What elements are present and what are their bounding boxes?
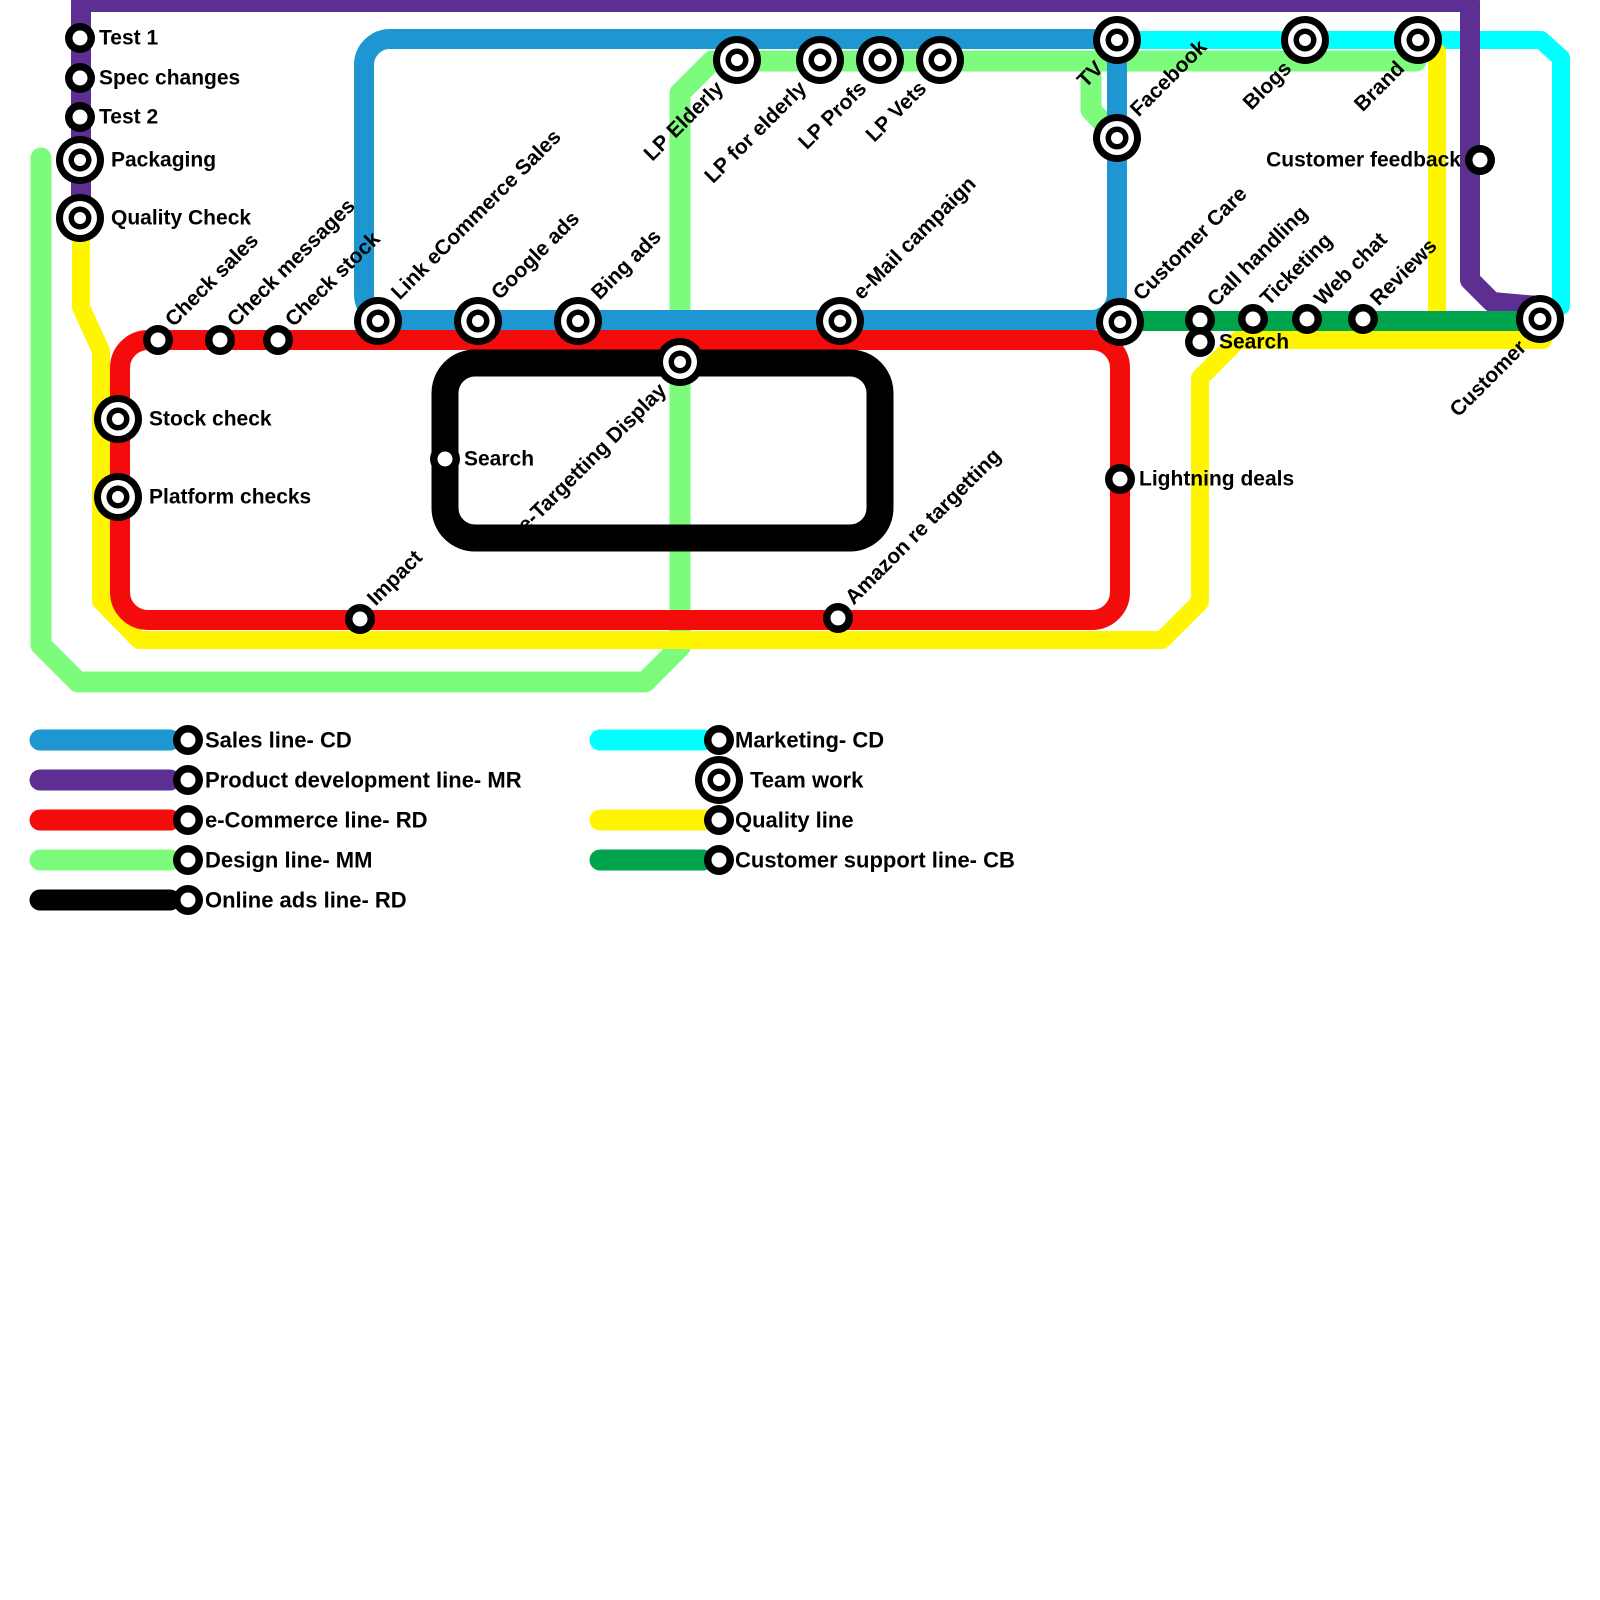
legend-label-quality: Quality line <box>735 808 854 833</box>
label-quality-check: Quality Check <box>111 207 251 230</box>
stop-center <box>181 733 196 748</box>
stop-center <box>438 452 453 467</box>
legend-item-product-development: Product development line- MR <box>40 765 522 795</box>
interchange-center <box>1534 313 1546 325</box>
interchange-center <box>112 413 124 425</box>
station-customer-feedback: Customer feedback <box>1266 145 1495 175</box>
interchange-center <box>1111 34 1123 46</box>
stop-center <box>181 853 196 868</box>
legend-label-marketing: Marketing- CD <box>735 728 884 753</box>
legend-item-ecommerce: e-Commerce line- RD <box>40 805 428 835</box>
stop-center <box>1246 312 1261 327</box>
legend-label-ecommerce: e-Commerce line- RD <box>205 808 428 833</box>
stop-center <box>1113 472 1128 487</box>
station-test-2: Test 2 <box>65 102 158 132</box>
stop-center <box>181 813 196 828</box>
legend-label-team-work: Team work <box>750 768 864 793</box>
label-lightning-deals: Lightning deals <box>1139 468 1294 491</box>
interchange-center <box>934 54 946 66</box>
stop-center <box>181 773 196 788</box>
stop-center <box>271 333 286 348</box>
legend-item-design: Design line- MM <box>40 845 372 875</box>
interchange-center <box>731 54 743 66</box>
interchange-center <box>874 54 886 66</box>
interchange-center <box>713 774 725 786</box>
station-search-ads: Search <box>430 444 534 474</box>
interchange-center <box>814 54 826 66</box>
process-metro-map-canvas: Test 1Spec changesTest 2PackagingQuality… <box>0 0 1600 1600</box>
stop-center <box>1300 312 1315 327</box>
stop-center <box>353 612 368 627</box>
interchange-center <box>1114 316 1126 328</box>
legend-label-design: Design line- MM <box>205 848 372 873</box>
stop-center <box>73 110 88 125</box>
stop-center <box>1193 335 1208 350</box>
label-platform-checks: Platform checks <box>149 486 311 509</box>
stop-center <box>712 853 727 868</box>
label-stock-check: Stock check <box>149 408 272 431</box>
label-packaging: Packaging <box>111 149 216 172</box>
interchange-center <box>1111 132 1123 144</box>
legend-item-marketing: Marketing- CD <box>600 725 884 755</box>
label-search-ads: Search <box>464 448 534 471</box>
legend-label-product-development: Product development line- MR <box>205 768 522 793</box>
stop-center <box>73 31 88 46</box>
station-search-support: Search <box>1185 327 1289 357</box>
stop-center <box>712 813 727 828</box>
interchange-center <box>112 491 124 503</box>
interchange-center <box>74 154 86 166</box>
legend-label-online-ads: Online ads line- RD <box>205 888 407 913</box>
stop-center <box>831 611 846 626</box>
interchange-center <box>74 212 86 224</box>
label-test-2: Test 2 <box>99 106 158 129</box>
stop-center <box>1193 313 1208 328</box>
process-metro-map: Test 1Spec changesTest 2PackagingQuality… <box>0 0 1600 1600</box>
interchange-center <box>1299 34 1311 46</box>
interchange-center <box>572 315 584 327</box>
label-spec-changes: Spec changes <box>99 67 240 90</box>
legend-item-sales: Sales line- CD <box>40 725 352 755</box>
stop-center <box>1356 312 1371 327</box>
interchange-center <box>1412 34 1424 46</box>
legend-label-sales: Sales line- CD <box>205 728 352 753</box>
stop-center <box>73 71 88 86</box>
station-test-1: Test 1 <box>65 23 158 53</box>
legend-item-online-ads: Online ads line- RD <box>40 885 407 915</box>
stop-center <box>712 733 727 748</box>
interchange-center <box>372 315 384 327</box>
label-search-support: Search <box>1219 331 1289 354</box>
legend-label-customer-support: Customer support line- CB <box>735 848 1015 873</box>
stop-center <box>151 333 166 348</box>
stop-center <box>181 893 196 908</box>
interchange-center <box>834 315 846 327</box>
label-customer-feedback: Customer feedback <box>1266 149 1461 172</box>
label-test-1: Test 1 <box>99 27 158 50</box>
interchange-center <box>674 356 686 368</box>
stop-center <box>213 333 228 348</box>
legend-item-quality: Quality line <box>600 805 854 835</box>
interchange-center <box>472 315 484 327</box>
stop-center <box>1473 153 1488 168</box>
legend-item-customer-support: Customer support line- CB <box>600 845 1015 875</box>
